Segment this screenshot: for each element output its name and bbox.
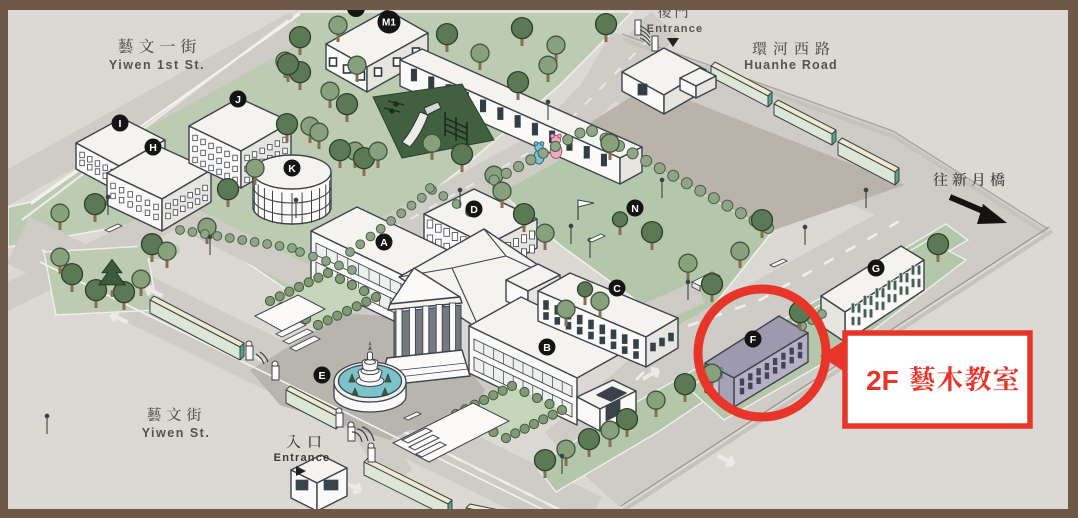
svg-text:J: J (235, 94, 241, 106)
svg-text:B: B (543, 342, 551, 354)
svg-text:K: K (288, 163, 296, 175)
svg-text:C: C (613, 283, 621, 295)
svg-text:D: D (470, 204, 478, 216)
svg-text:Entrance: Entrance (647, 23, 704, 35)
svg-text:Huanhe Road: Huanhe Road (744, 58, 838, 72)
svg-text:Entrance: Entrance (274, 452, 331, 464)
svg-text:I: I (119, 118, 122, 130)
svg-text:N: N (631, 203, 639, 215)
svg-text:F: F (750, 334, 757, 346)
svg-text:2F: 2F (866, 365, 899, 396)
svg-text:Yiwen 1st St.: Yiwen 1st St. (109, 58, 205, 72)
svg-text:H: H (149, 142, 157, 154)
svg-text:A: A (380, 237, 388, 249)
svg-text:E: E (318, 370, 325, 382)
svg-text:G: G (872, 263, 880, 275)
svg-text:M1: M1 (382, 18, 396, 29)
svg-text:Yiwen St.: Yiwen St. (142, 426, 211, 440)
